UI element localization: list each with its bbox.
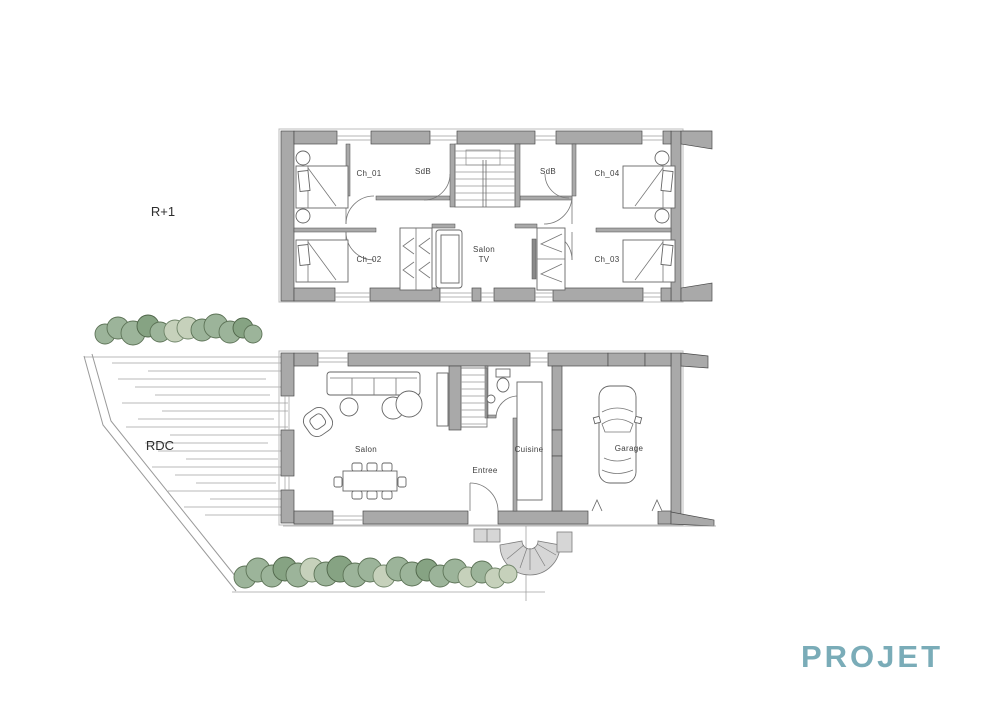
sideboard-symbol (437, 373, 448, 426)
nightstand (296, 209, 310, 223)
interior-walls-r1 (294, 144, 671, 232)
wardrobe-symbol-right (537, 228, 565, 290)
nightstand (655, 151, 669, 165)
drawing-sheet: Ch_01 SdB SdB Ch_04 Ch_02 Ch_03 Salon TV… (0, 0, 1000, 706)
room-label-cuisine: Cuisine (515, 445, 544, 454)
bed-symbol-ch03 (623, 240, 675, 282)
room-label-sdb-right: SdB (540, 167, 556, 176)
kitchen-counter (517, 382, 542, 500)
room-label-ch02: Ch_02 (356, 255, 381, 264)
bed-symbol-ch02 (296, 240, 348, 282)
floor-plan-drawing: Ch_01 SdB SdB Ch_04 Ch_02 Ch_03 Salon TV… (0, 0, 1000, 706)
sofa-symbol-r1 (436, 230, 462, 288)
dining-table-symbol (334, 463, 406, 499)
room-label-ch03: Ch_03 (594, 255, 619, 264)
car-mirror (593, 416, 600, 423)
room-label-salon-tv: Salon (473, 245, 495, 254)
garage-door-marks (592, 500, 662, 511)
staircase-rdc (461, 368, 487, 427)
room-label-salon: Salon (355, 445, 377, 454)
nightstand (655, 209, 669, 223)
car-mirror (634, 416, 641, 423)
watermark-projet: PROJET (801, 639, 943, 674)
tv-symbol (532, 239, 536, 279)
terrace (84, 354, 288, 591)
wall-flare (681, 283, 712, 301)
toilet-symbol (487, 369, 518, 418)
bed-symbol-ch01 (296, 151, 348, 223)
car-symbol (593, 386, 641, 483)
upper-floor-plan: Ch_01 SdB SdB Ch_04 Ch_02 Ch_03 Salon TV (279, 129, 712, 302)
entrance-door (470, 483, 498, 511)
bed-symbol-ch04 (623, 151, 675, 223)
room-label-ch01: Ch_01 (356, 169, 381, 178)
vegetation-bottom (234, 556, 517, 588)
floor-label-r1: R+1 (151, 204, 175, 219)
ground-floor-plan: Salon Entree Cuisine Garage (279, 351, 714, 526)
hatched-wall-segment (552, 430, 562, 456)
staircase-r1 (455, 144, 515, 207)
room-label-ch04: Ch_04 (594, 169, 619, 178)
nightstand (296, 151, 310, 165)
sink-symbol (487, 395, 495, 403)
deck-lines (112, 363, 288, 515)
wall-flare (671, 512, 714, 526)
room-label-sdb-left: SdB (415, 167, 431, 176)
wall-flare (681, 353, 708, 368)
floor-label-rdc: RDC (146, 438, 174, 453)
room-label-entree: Entree (472, 466, 498, 475)
armchair-symbol (300, 404, 336, 440)
hatched-wall-segment (608, 353, 645, 366)
pouf-symbol (340, 398, 358, 416)
wall-flare (681, 131, 712, 149)
vegetation-top (95, 314, 262, 345)
room-label-salon-tv-2: TV (479, 255, 490, 264)
room-label-garage: Garage (615, 444, 644, 453)
wardrobe-symbol-left (400, 228, 432, 290)
